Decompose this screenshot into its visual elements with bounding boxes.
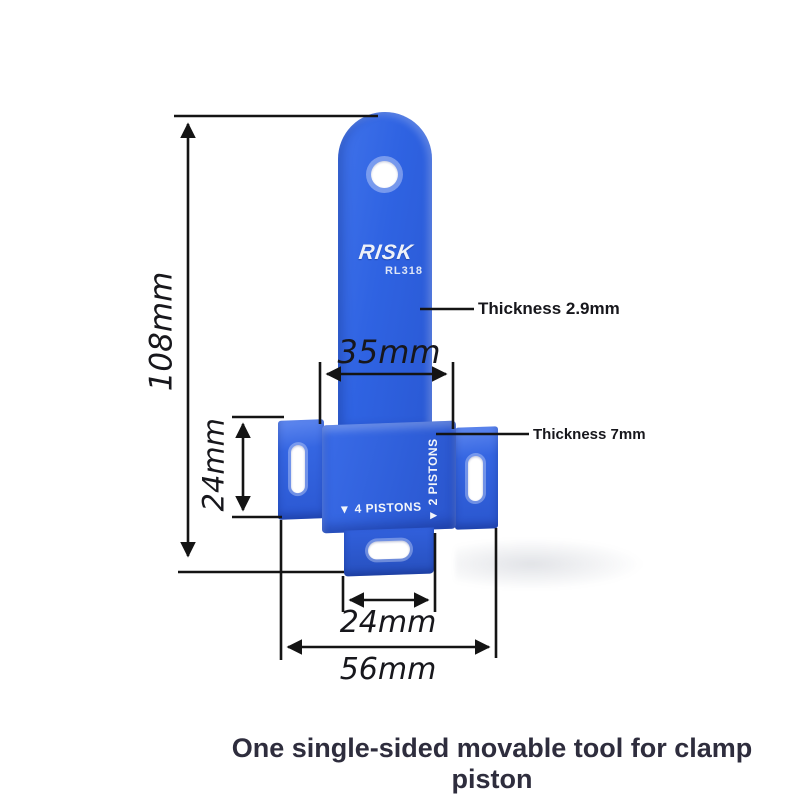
label-blade-thickness: Thickness 2.9mm <box>478 299 620 319</box>
label-body-thickness: Thickness 7mm <box>533 426 646 443</box>
product-caption: One single-sided movable tool for clamp … <box>192 733 792 795</box>
product-dimension-diagram: RISK RL318 ▼ 4 PISTONS ▼ 2 PISTONS <box>0 0 800 800</box>
dimension-24mm-horizontal <box>343 533 435 612</box>
dimension-24mm-vertical <box>232 417 284 517</box>
label-overall-width: 56mm <box>328 655 448 685</box>
dimension-35mm <box>320 362 453 429</box>
label-tab-width: 24mm <box>328 608 448 638</box>
label-wing-height: 24mm <box>200 422 229 512</box>
label-blade-width: 35mm <box>329 336 449 368</box>
label-overall-height: 108mm <box>147 272 178 392</box>
